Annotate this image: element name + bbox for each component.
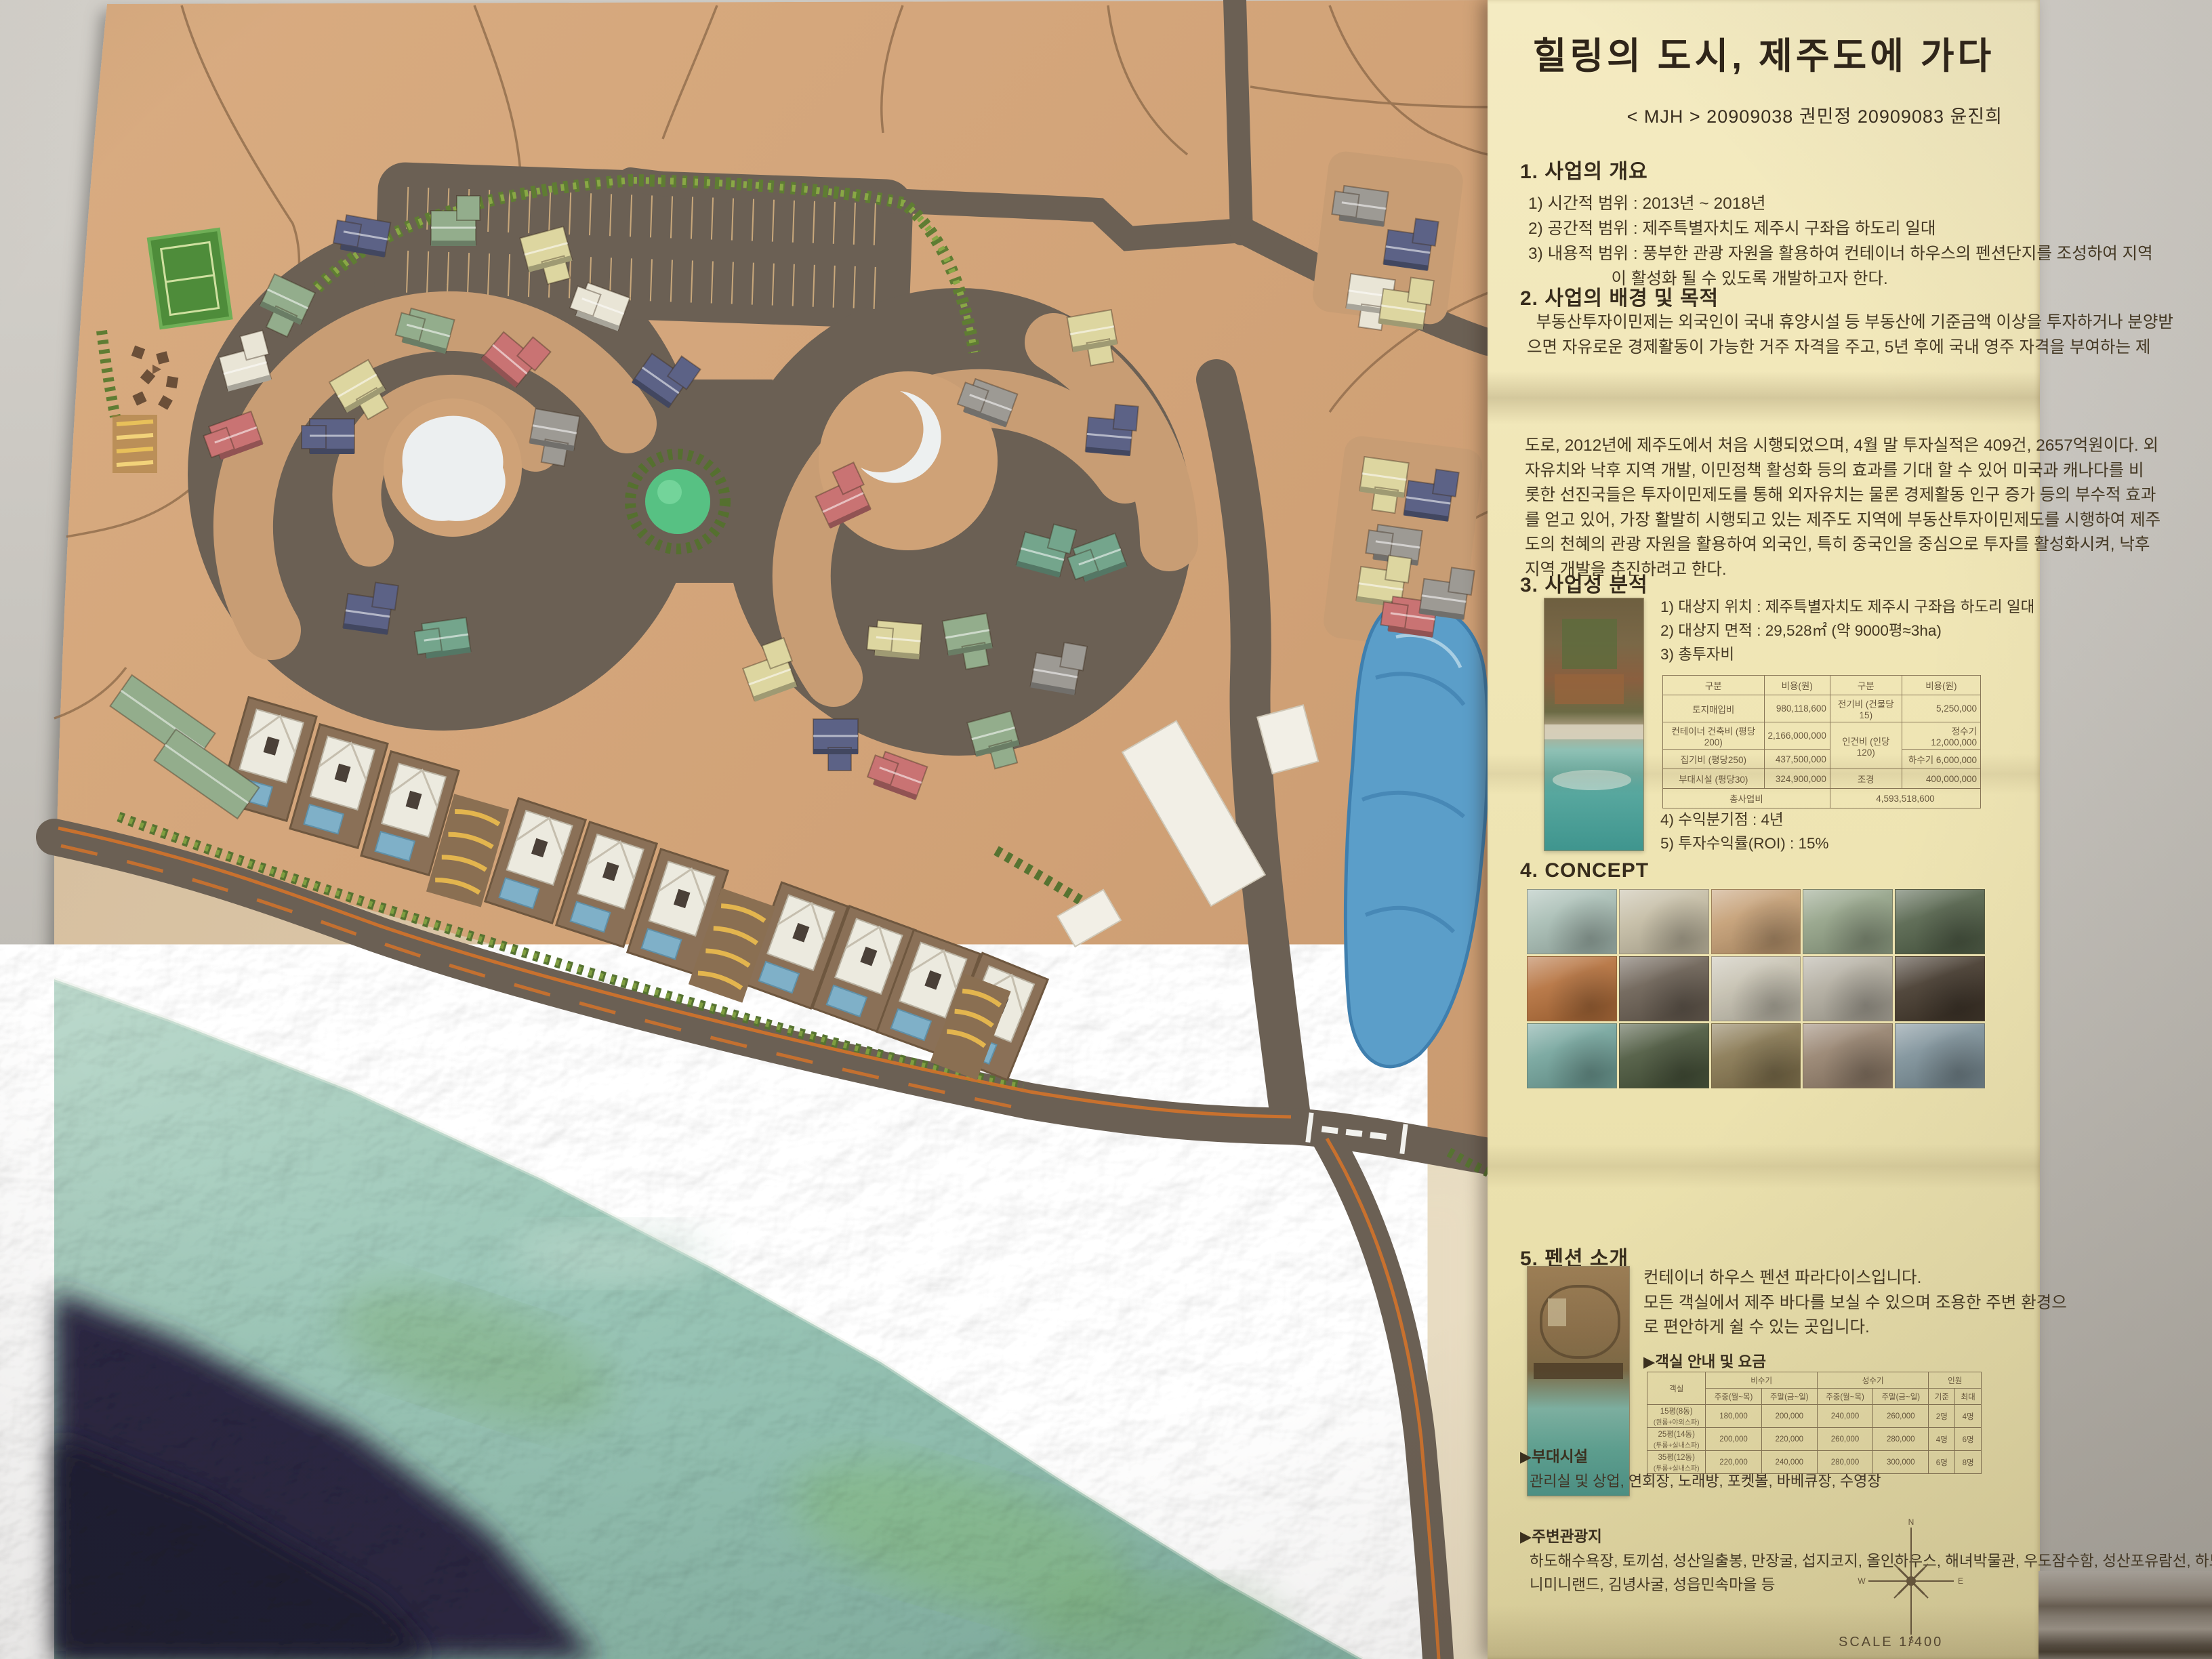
pond-cluster1 — [402, 416, 506, 521]
investment-table: 구분비용(원)구분비용(원)토지매입비980,118,600전기비 (건물당15… — [1662, 675, 1981, 808]
scale-label: SCALE 1/400 — [1839, 1635, 1943, 1650]
text-line: 1) 시간적 범위 : 2013년 ~ 2018년 — [1528, 191, 2153, 216]
section2-para2: 도로, 2012년에 제주도에서 처음 시행되었으며, 4월 말 투자실적은 4… — [1525, 434, 2160, 582]
concept-photo — [1619, 956, 1709, 1021]
concept-photo — [1803, 1023, 1893, 1088]
text-line: 2) 공간적 범위 : 제주특별자치도 제주시 구좌읍 하도리 일대 — [1528, 216, 2153, 241]
aerial-photo — [1544, 598, 1644, 851]
model-house — [413, 617, 470, 659]
table-row: 부대시설 (평당30)324,900,000조경400,000,000 — [1663, 769, 1981, 789]
text-line: 자유치와 낙후 지역 개발, 이민정책 활성화 등의 효과를 기대 할 수 있어… — [1525, 459, 2160, 484]
section2-para1: 부동산투자이민제는 외국인이 국내 휴양시설 등 부동산에 기준금액 이상을 투… — [1527, 310, 2173, 360]
table-row: 집기비 (평당250)437,500,000하수기 6,000,000 — [1663, 750, 1981, 769]
price-table: 객실비수기성수기인원주중(월~목)주말(금~일)주중(월~목)주말(금~일)기준… — [1647, 1372, 1982, 1474]
text-line: 4) 수익분기점 : 4년 — [1660, 808, 1829, 832]
table-row: 토지매입비980,118,600전기비 (건물당15)5,250,000 — [1663, 695, 1981, 722]
section4-heading: 4. CONCEPT — [1520, 859, 1649, 882]
text-line: 롯한 선진국들은 투자이민제도를 통해 외자유치는 물론 경제활동 인구 증가 … — [1525, 483, 2160, 508]
concept-photo — [1803, 956, 1893, 1021]
concept-photo — [1527, 956, 1617, 1021]
text-line: 3) 내용적 범위 : 풍부한 관광 자원을 활용하여 컨테이너 하우스의 펜션… — [1528, 241, 2153, 266]
concept-photo — [1527, 1023, 1617, 1088]
poster-title: 힐링의 도시, 제주도에 가다 — [1515, 26, 2013, 79]
table-total-row: 총사업비4,593,518,600 — [1663, 789, 1981, 808]
concept-photo — [1895, 956, 1985, 1021]
price-table-label: ▶객실 안내 및 요금 — [1643, 1350, 1766, 1372]
price-row: 25평(14동)(투룸+실내스파)200,000220,000260,00028… — [1647, 1428, 1982, 1451]
poster-authors: < MJH > 20909038 권민정 20909083 윤진희 — [1488, 102, 2003, 128]
facilities-label: ▶부대시설 — [1520, 1445, 1588, 1467]
text-line: 컨테이너 하우스 펜션 파라다이스입니다. — [1643, 1266, 2067, 1291]
section3-heading: 3. 사업성 분석 — [1520, 568, 1648, 598]
table-header: 구분 — [1830, 676, 1902, 695]
paper-fold — [1488, 371, 2040, 424]
paper-fold — [1488, 1144, 2040, 1189]
attractions-label: ▶주변관광지 — [1520, 1525, 1602, 1547]
text-line: 도의 천혜의 관광 자원을 활용하여 외국인, 특히 중국인을 중심으로 투자를… — [1525, 533, 2160, 558]
text-line: 2) 대상지 면적 : 29,528㎡ (약 9000평≈3ha) — [1660, 619, 2034, 642]
text-line: 도로, 2012년에 제주도에서 처음 시행되었으며, 4월 말 투자실적은 4… — [1525, 434, 2160, 459]
pension-desc: 컨테이너 하우스 펜션 파라다이스입니다.모든 객실에서 제주 바다를 보실 수… — [1643, 1266, 2067, 1340]
text-line: 으면 자유로운 경제활동이 가능한 거주 자격을 주고, 5년 후에 국내 영주… — [1527, 335, 2173, 361]
text-line: 를 얻고 있어, 가장 활발히 시행되고 있는 제주도 지역에 부동산투자이민제… — [1525, 508, 2160, 533]
concept-photo — [1711, 956, 1801, 1021]
concept-photo — [1619, 1023, 1709, 1088]
svg-text:W: W — [1858, 1576, 1866, 1586]
concept-photo-grid — [1527, 889, 1985, 1088]
concept-photo — [1619, 889, 1709, 954]
svg-text:E: E — [1958, 1576, 1963, 1586]
table-header: 비용(원) — [1764, 676, 1830, 695]
table-header: 구분 — [1663, 676, 1765, 695]
wall-baseboard — [2039, 1571, 2212, 1659]
info-poster: 힐링의 도시, 제주도에 가다 < MJH > 20909038 권민정 209… — [1488, 0, 2040, 1659]
price-row: 15평(8동)(원룸+야외스파)180,000200,000240,000260… — [1647, 1405, 1982, 1428]
concept-photo — [1711, 1023, 1801, 1088]
concept-photo — [1527, 889, 1617, 954]
text-line: 부동산투자이민제는 외국인이 국내 휴양시설 등 부동산에 기준금액 이상을 투… — [1527, 310, 2173, 335]
concept-photo — [1711, 889, 1801, 954]
table-row: 컨테이너 건축비 (평당200)2,166,000,000인건비 (인당120)… — [1663, 722, 1981, 750]
photo-scene: 힐링의 도시, 제주도에 가다 < MJH > 20909038 권민정 209… — [0, 0, 2212, 1659]
text-line: 로 편안하게 쉴 수 있는 곳입니다. — [1643, 1315, 2067, 1340]
text-line: 1) 대상지 위치 : 제주특별자치도 제주시 구좌읍 하도리 일대 — [1660, 595, 2034, 619]
text-line: 5) 투자수익률(ROI) : 15% — [1660, 832, 1829, 855]
section1-heading: 1. 사업의 개요 — [1520, 155, 1648, 184]
concept-photo — [1895, 1023, 1985, 1088]
text-line: 모든 객실에서 제주 바다를 보실 수 있으며 조용한 주변 환경으 — [1643, 1291, 2067, 1316]
concept-photo — [1803, 889, 1893, 954]
section1-items: 1) 시간적 범위 : 2013년 ~ 2018년2) 공간적 범위 : 제주특… — [1528, 191, 2153, 291]
section3-items: 1) 대상지 위치 : 제주특별자치도 제주시 구좌읍 하도리 일대2) 대상지… — [1660, 595, 2034, 666]
compass-rose-icon: N E S W — [1853, 1518, 1969, 1644]
svg-text:N: N — [1908, 1518, 1914, 1527]
facilities-text: 관리실 및 상업, 연회장, 노래방, 포켓볼, 바베큐장, 수영장 — [1530, 1469, 1881, 1491]
tennis-court — [148, 229, 230, 327]
table-header: 비용(원) — [1902, 676, 1980, 695]
concept-photo — [1895, 889, 1985, 954]
section3-items2: 4) 수익분기점 : 4년5) 투자수익률(ROI) : 15% — [1660, 808, 1829, 855]
gold-benches — [112, 415, 157, 473]
text-line: 3) 총투자비 — [1660, 642, 2034, 666]
section2-heading: 2. 사업의 배경 및 목적 — [1520, 281, 1719, 311]
model-house — [302, 419, 354, 454]
